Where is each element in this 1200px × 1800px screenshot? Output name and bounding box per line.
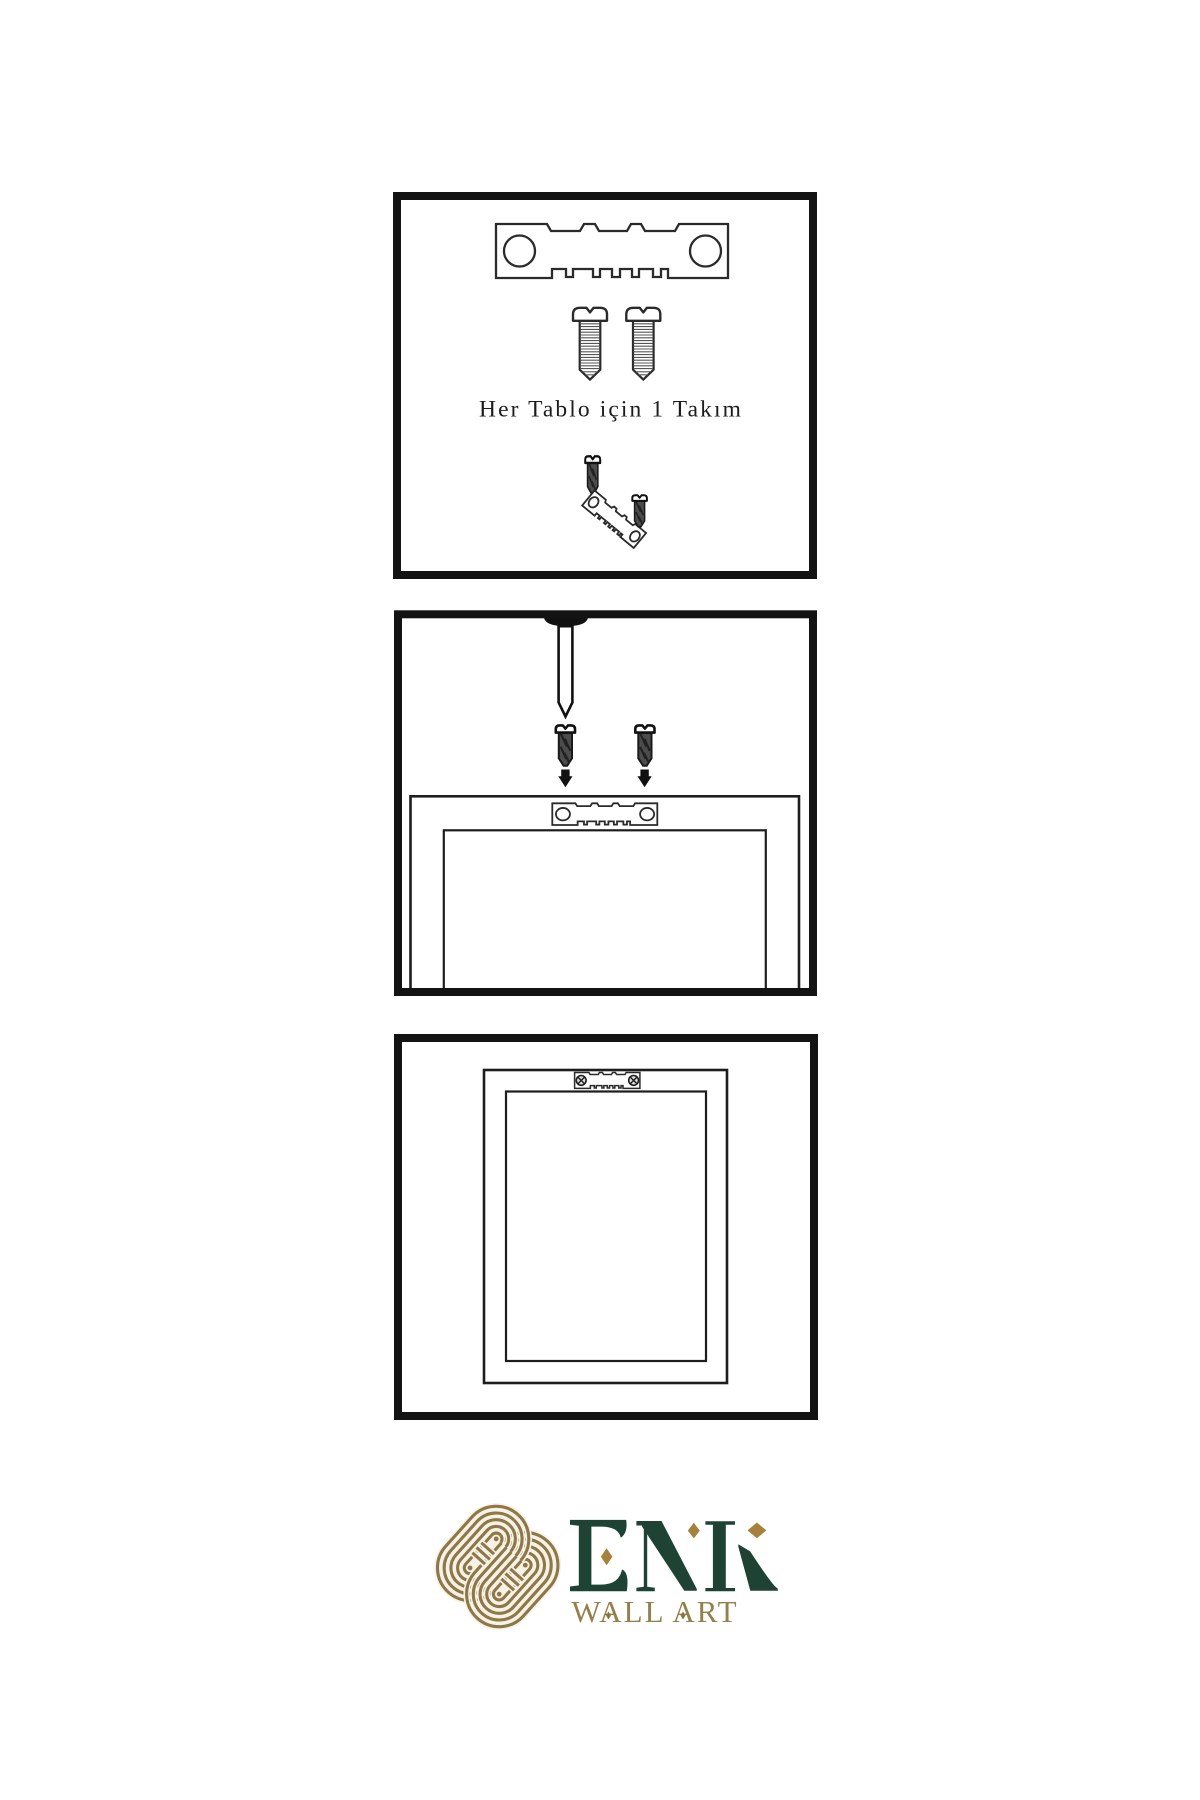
svg-text:WALL ART: WALL ART bbox=[571, 1594, 738, 1629]
svg-text:Her Tablo için 1 Takım: Her Tablo için 1 Takım bbox=[479, 397, 743, 423]
